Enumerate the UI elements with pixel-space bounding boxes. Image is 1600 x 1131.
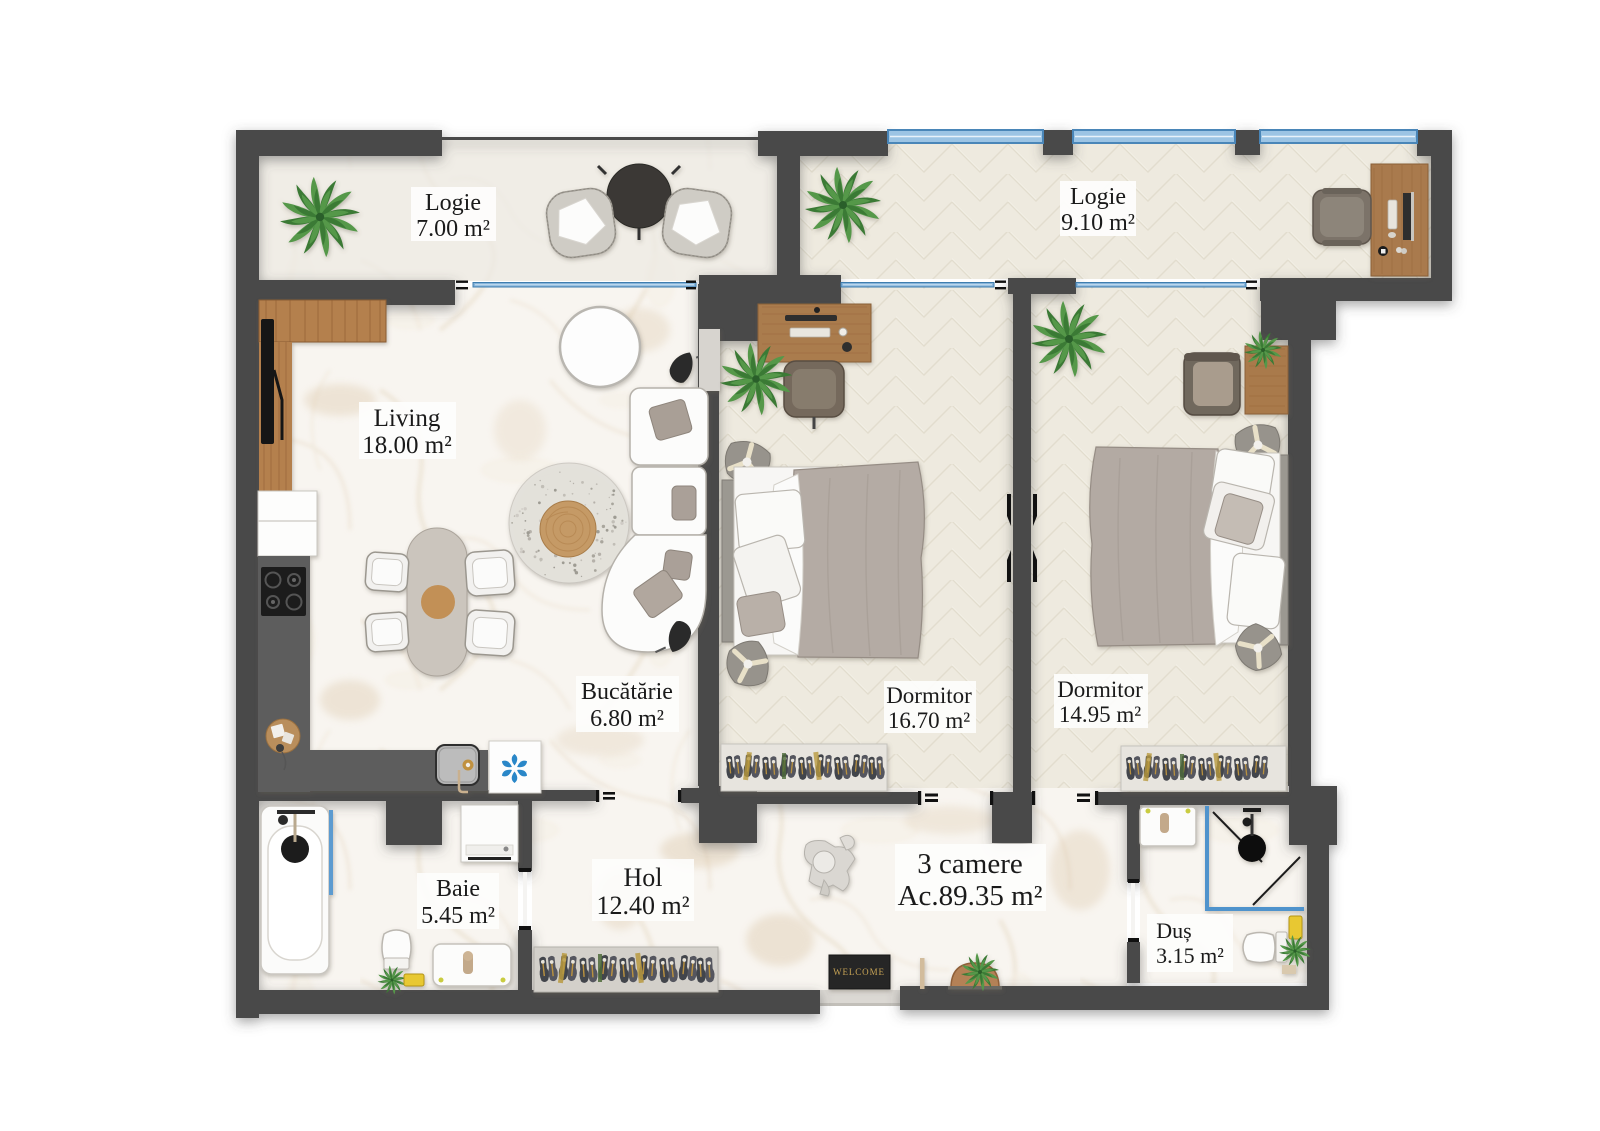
- svg-text:Living: Living: [374, 405, 441, 432]
- svg-text:Logie: Logie: [425, 190, 481, 216]
- svg-text:Dormitor: Dormitor: [1057, 677, 1143, 702]
- svg-text:Dormitor: Dormitor: [886, 683, 972, 708]
- svg-text:Baie: Baie: [436, 876, 480, 902]
- svg-text:14.95 m²: 14.95 m²: [1059, 702, 1141, 727]
- svg-text:3.15 m²: 3.15 m²: [1156, 943, 1224, 968]
- svg-text:5.45 m²: 5.45 m²: [421, 903, 495, 929]
- svg-text:7.00 m²: 7.00 m²: [416, 216, 490, 242]
- svg-text:Bucătărie: Bucătărie: [581, 679, 673, 705]
- svg-text:Hol: Hol: [624, 863, 663, 892]
- svg-text:Duș: Duș: [1156, 918, 1191, 943]
- svg-text:6.80 m²: 6.80 m²: [590, 706, 664, 732]
- svg-text:WELCOME: WELCOME: [833, 967, 885, 977]
- svg-text:Ac.89.35 m²: Ac.89.35 m²: [898, 880, 1043, 912]
- svg-text:9.10 m²: 9.10 m²: [1061, 210, 1135, 236]
- svg-text:Logie: Logie: [1070, 184, 1126, 210]
- svg-text:12.40 m²: 12.40 m²: [596, 891, 689, 920]
- svg-text:18.00 m²: 18.00 m²: [362, 432, 451, 459]
- svg-text:16.70 m²: 16.70 m²: [888, 708, 970, 733]
- svg-text:3 camere: 3 camere: [917, 848, 1022, 880]
